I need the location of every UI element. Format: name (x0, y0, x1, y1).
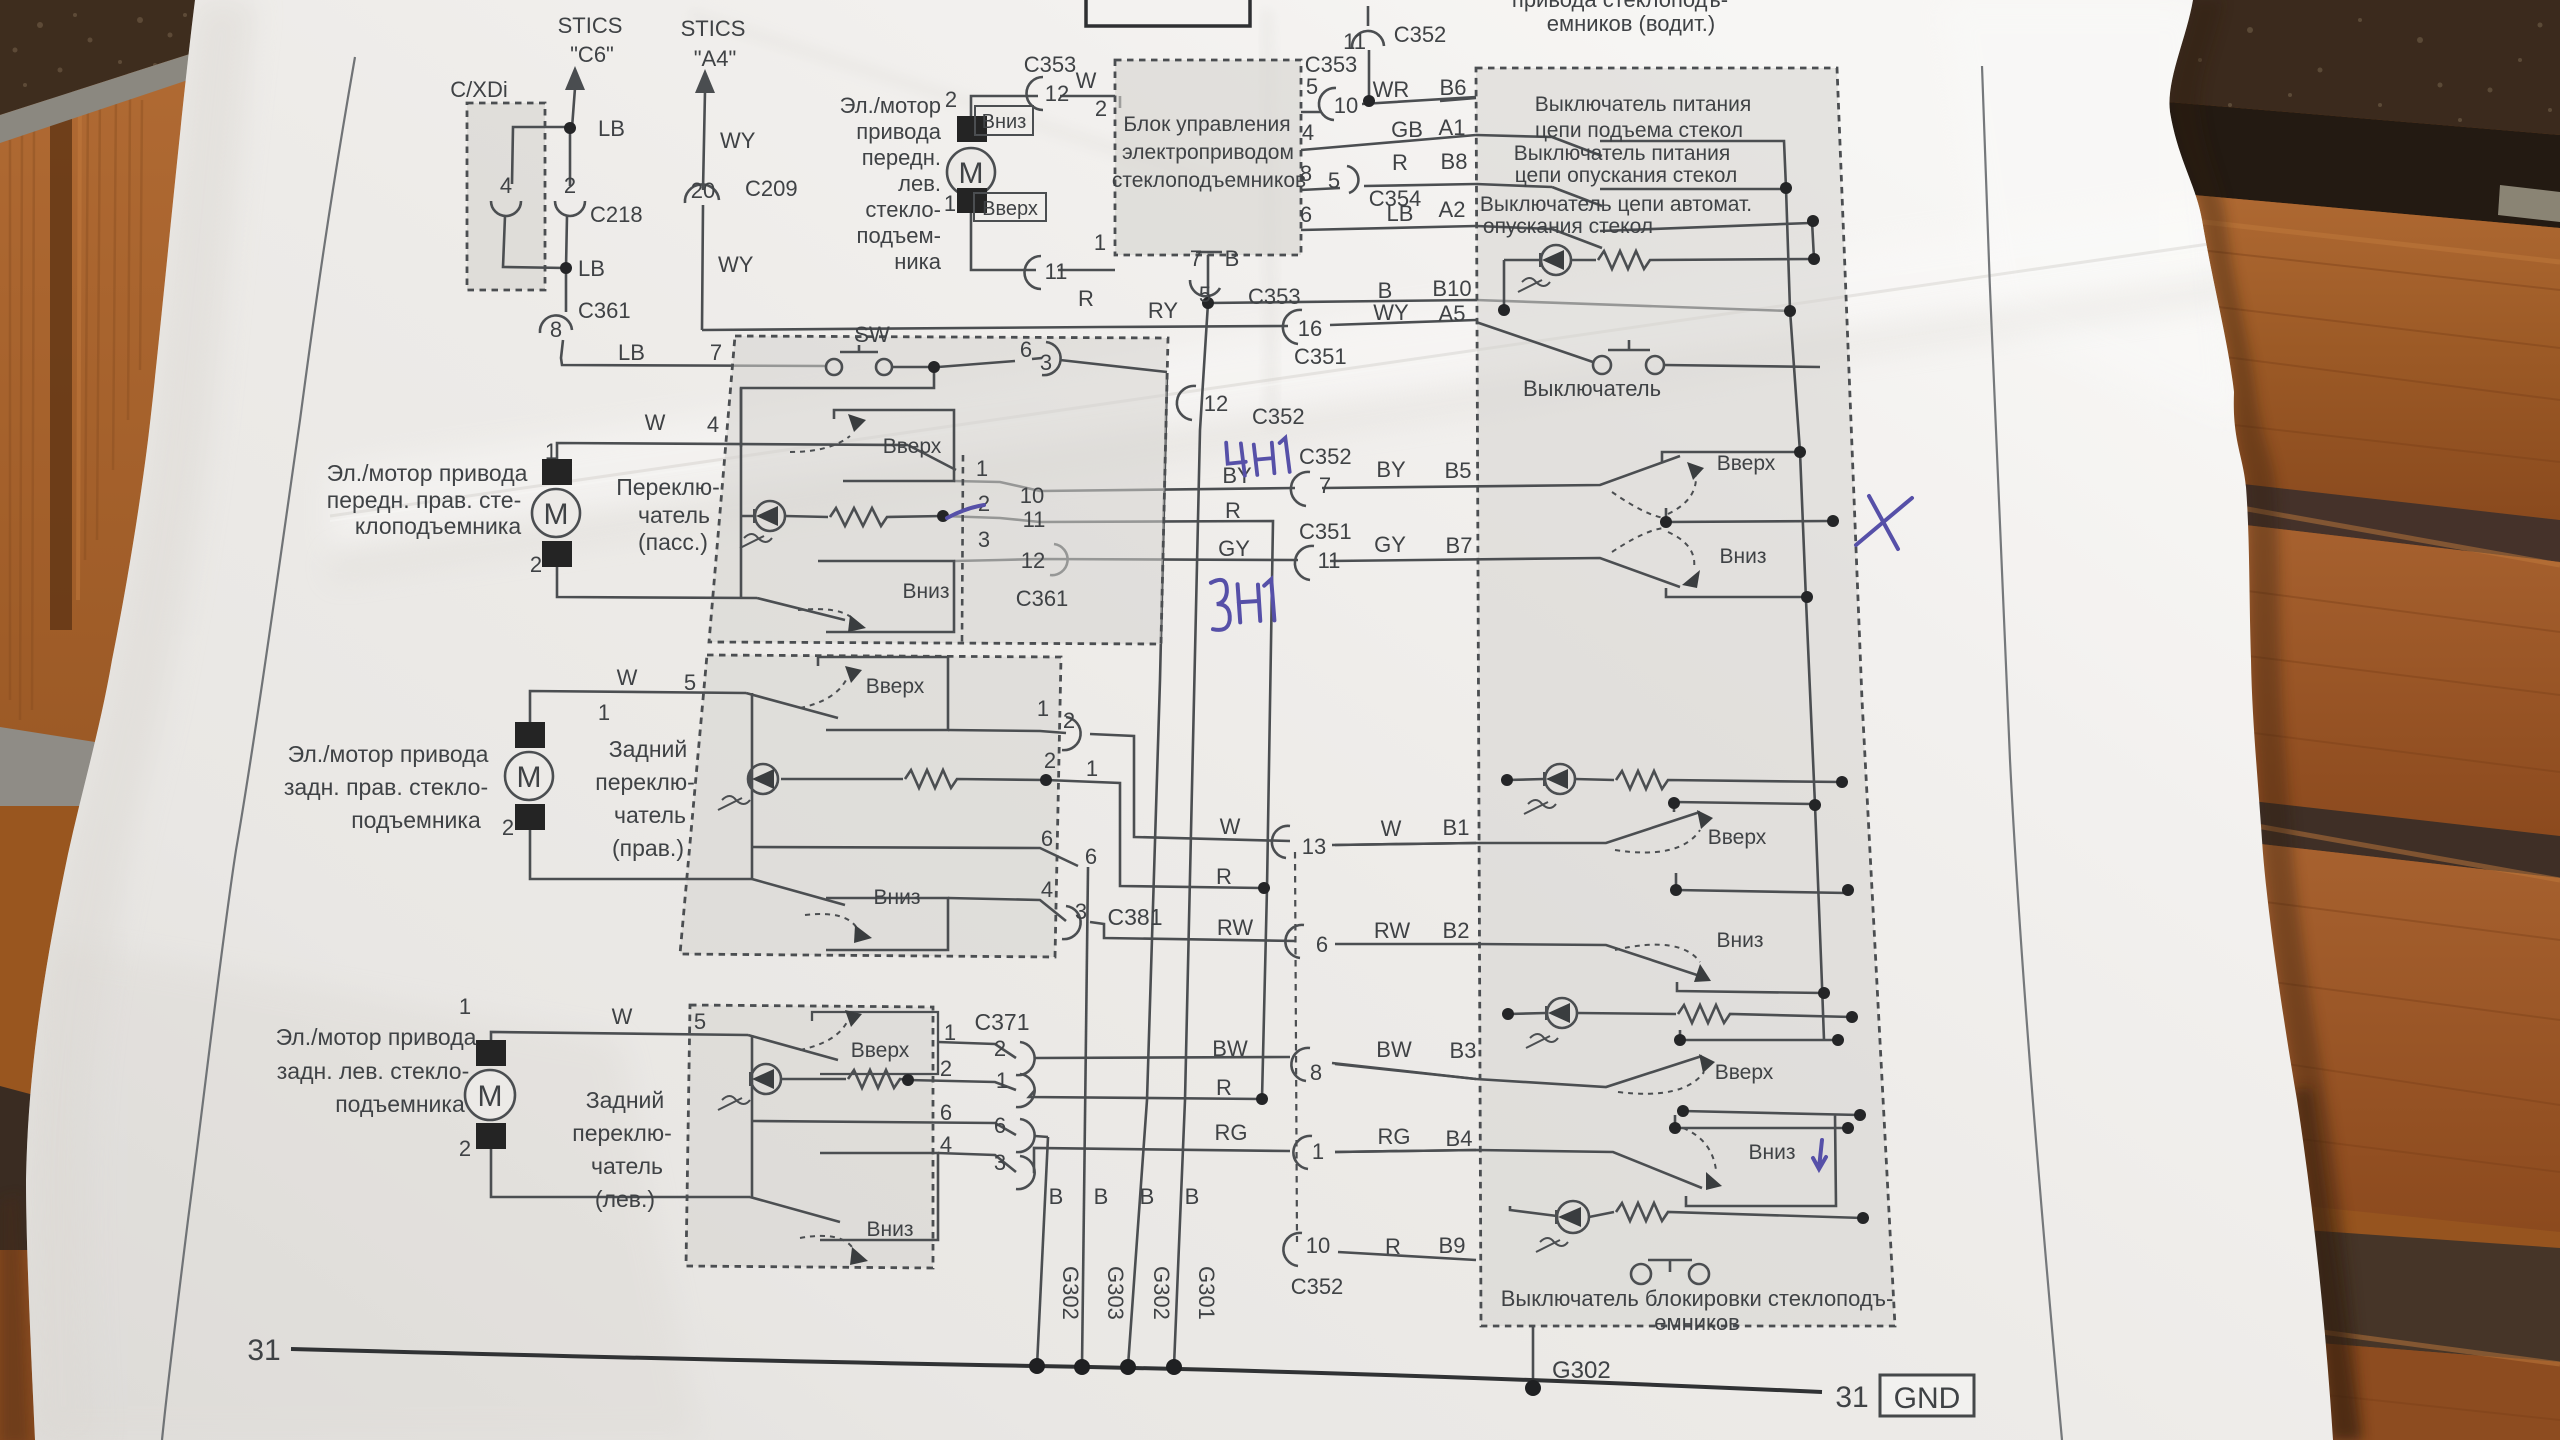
svg-text:2: 2 (530, 552, 542, 577)
svg-text:1: 1 (1312, 1139, 1324, 1164)
svg-text:4: 4 (500, 173, 512, 198)
svg-text:W: W (645, 410, 666, 435)
svg-text:W: W (612, 1004, 633, 1029)
svg-text:C353: C353 (1024, 52, 1077, 77)
svg-text:1: 1 (944, 1020, 956, 1045)
svg-text:WY: WY (720, 128, 756, 153)
svg-text:B9: B9 (1439, 1233, 1466, 1258)
svg-text:C352: C352 (1394, 22, 1447, 47)
svg-text:Эл./мотор привода: Эл./мотор привода (327, 460, 528, 486)
svg-text:емников (водит.): емников (водит.) (1547, 11, 1715, 36)
svg-text:3: 3 (1040, 350, 1052, 375)
svg-text:B: B (1049, 1184, 1064, 1209)
svg-text:Вверх: Вверх (1708, 826, 1767, 849)
svg-text:привода: привода (856, 119, 941, 144)
svg-text:10: 10 (1306, 1233, 1330, 1258)
svg-text:R: R (1216, 1075, 1232, 1100)
svg-text:1: 1 (545, 439, 557, 464)
svg-text:BW: BW (1212, 1036, 1248, 1061)
svg-text:B1: B1 (1443, 815, 1470, 840)
svg-text:подъем-: подъем- (857, 223, 941, 248)
svg-text:клоподъемника: клоподъемника (355, 513, 522, 539)
svg-text:C361: C361 (578, 298, 631, 323)
svg-text:Вверх: Вверх (1717, 452, 1776, 475)
svg-text:лев.: лев. (898, 171, 941, 196)
svg-text:Вниз: Вниз (867, 1218, 914, 1241)
svg-text:W: W (1076, 68, 1097, 93)
svg-text:Эл./мотор привода: Эл./мотор привода (288, 741, 489, 767)
svg-text:1: 1 (459, 994, 471, 1019)
svg-text:6: 6 (1020, 337, 1032, 362)
svg-text:3: 3 (994, 1150, 1006, 1175)
svg-text:5: 5 (1306, 74, 1318, 99)
svg-text:C209: C209 (745, 176, 798, 201)
svg-text:13: 13 (1302, 834, 1326, 859)
svg-text:Выключатель блокировки стеклоп: Выключатель блокировки стеклоподъ- (1501, 1286, 1894, 1311)
svg-text:M: M (478, 1080, 503, 1113)
svg-text:RW: RW (1217, 915, 1253, 940)
svg-text:GY: GY (1374, 532, 1406, 557)
svg-text:C218: C218 (590, 202, 643, 227)
svg-text:опускания стекол: опускания стекол (1483, 215, 1653, 238)
svg-text:A5: A5 (1439, 301, 1466, 326)
svg-text:A2: A2 (1439, 197, 1466, 222)
svg-text:Вверх: Вверх (1715, 1061, 1774, 1084)
svg-text:W: W (617, 665, 638, 690)
svg-text:C361: C361 (1016, 586, 1069, 611)
svg-text:G301: G301 (1194, 1266, 1219, 1320)
svg-text:8: 8 (550, 317, 562, 342)
svg-text:7: 7 (1190, 246, 1202, 271)
svg-text:2: 2 (1044, 748, 1056, 773)
svg-text:M: M (959, 157, 984, 190)
svg-text:6: 6 (994, 1113, 1006, 1138)
svg-text:2: 2 (502, 815, 514, 840)
svg-text:"C6": "C6" (570, 42, 614, 67)
svg-text:C351: C351 (1299, 519, 1352, 544)
svg-text:BY: BY (1222, 463, 1252, 488)
svg-text:10: 10 (1334, 93, 1358, 118)
svg-text:G302: G302 (1058, 1266, 1083, 1320)
svg-text:(прав.): (прав.) (612, 835, 684, 861)
svg-text:B6: B6 (1440, 75, 1467, 100)
svg-text:GND: GND (1894, 1382, 1961, 1415)
svg-text:11: 11 (1343, 29, 1366, 54)
svg-text:электроприводом: электроприводом (1122, 141, 1294, 164)
svg-text:1: 1 (996, 1068, 1008, 1093)
svg-text:LB: LB (578, 256, 605, 281)
svg-text:31: 31 (247, 1334, 280, 1367)
svg-text:R: R (1385, 1234, 1401, 1259)
svg-text:12: 12 (1021, 548, 1045, 573)
svg-text:B3: B3 (1450, 1038, 1477, 1063)
svg-text:1: 1 (1086, 756, 1098, 781)
svg-text:12: 12 (1045, 81, 1069, 106)
svg-text:B: B (1378, 278, 1393, 303)
svg-text:G303: G303 (1103, 1266, 1128, 1320)
svg-text:5: 5 (694, 1009, 706, 1034)
svg-text:STICS: STICS (558, 13, 623, 38)
svg-text:B2: B2 (1443, 918, 1470, 943)
svg-text:RG: RG (1215, 1120, 1248, 1145)
svg-text:LB: LB (598, 116, 625, 141)
svg-text:стеклоподъемников: стеклоподъемников (1112, 169, 1306, 192)
svg-text:B7: B7 (1446, 533, 1473, 558)
svg-text:B5: B5 (1445, 458, 1472, 483)
svg-text:B10: B10 (1432, 276, 1471, 301)
svg-text:11: 11 (1045, 259, 1068, 284)
svg-text:стекло-: стекло- (865, 197, 941, 222)
svg-text:5: 5 (684, 670, 696, 695)
svg-text:B: B (1185, 1184, 1200, 1209)
svg-text:Вниз: Вниз (982, 111, 1027, 133)
svg-text:C353: C353 (1248, 284, 1301, 309)
svg-text:2: 2 (1063, 708, 1075, 733)
svg-text:цепи подъема стекол: цепи подъема стекол (1535, 119, 1743, 142)
svg-text:цепи опускания стекол: цепи опускания стекол (1515, 164, 1738, 187)
svg-text:Переклю-: Переклю- (616, 474, 720, 500)
svg-text:подъемника: подъемника (335, 1091, 465, 1117)
svg-text:переклю-: переклю- (572, 1120, 671, 1146)
svg-text:C371: C371 (975, 1009, 1030, 1035)
svg-text:4: 4 (1041, 877, 1053, 902)
svg-text:1: 1 (976, 456, 988, 481)
svg-text:Вниз: Вниз (874, 886, 921, 909)
svg-text:Выключатель питания: Выключатель питания (1535, 93, 1751, 116)
svg-text:16: 16 (1298, 316, 1322, 341)
svg-text:3: 3 (978, 527, 990, 552)
svg-text:GB: GB (1391, 117, 1423, 142)
svg-text:3: 3 (1075, 899, 1087, 924)
svg-text:2: 2 (564, 173, 576, 198)
svg-text:10: 10 (1020, 483, 1044, 508)
svg-text:Выключатель цепи автомат.: Выключатель цепи автомат. (1480, 193, 1752, 216)
svg-text:чатель: чатель (591, 1153, 663, 1179)
svg-text:LB: LB (618, 340, 645, 365)
svg-text:R: R (1392, 150, 1408, 175)
svg-text:11: 11 (1023, 507, 1046, 532)
svg-text:LB: LB (1387, 201, 1414, 226)
svg-text:чатель: чатель (614, 802, 686, 828)
svg-text:B8: B8 (1441, 149, 1468, 174)
svg-text:Задний: Задний (586, 1087, 665, 1113)
svg-text:BW: BW (1376, 1037, 1412, 1062)
svg-text:W: W (1381, 816, 1402, 841)
svg-text:6: 6 (1041, 826, 1053, 851)
svg-text:R: R (1078, 286, 1094, 311)
svg-text:WR: WR (1373, 77, 1410, 102)
svg-text:(лев.): (лев.) (595, 1186, 655, 1212)
svg-text:G302: G302 (1552, 1357, 1611, 1384)
svg-text:2: 2 (994, 1036, 1006, 1061)
svg-text:"A4": "A4" (694, 46, 737, 71)
svg-text:передн. прав. сте-: передн. прав. сте- (327, 487, 522, 513)
svg-text:переклю-: переклю- (595, 769, 694, 795)
svg-text:A1: A1 (1439, 115, 1466, 140)
svg-text:чатель: чатель (638, 502, 710, 528)
svg-text:20: 20 (691, 178, 715, 203)
svg-text:WY: WY (1373, 300, 1409, 325)
svg-text:4: 4 (1302, 120, 1314, 145)
svg-text:7: 7 (1319, 473, 1331, 498)
svg-text:6: 6 (940, 1100, 952, 1125)
svg-text:8: 8 (1310, 1060, 1322, 1085)
svg-text:GY: GY (1218, 536, 1250, 561)
svg-text:Вверх: Вверх (866, 675, 925, 698)
svg-text:RY: RY (1148, 298, 1178, 323)
svg-text:B: B (1094, 1184, 1109, 1209)
svg-text:Задний: Задний (609, 736, 688, 762)
svg-text:B: B (1225, 246, 1240, 271)
svg-text:Выключатель питания: Выключатель питания (1514, 142, 1730, 165)
svg-text:12: 12 (1204, 391, 1228, 416)
svg-text:C381: C381 (1108, 904, 1163, 930)
svg-text:Эл./мотор: Эл./мотор (840, 93, 941, 118)
svg-text:5: 5 (1199, 282, 1211, 307)
svg-text:R: R (1216, 864, 1232, 889)
svg-text:C/XDi: C/XDi (450, 77, 507, 102)
svg-text:C351: C351 (1294, 344, 1347, 369)
svg-text:Вниз: Вниз (1720, 545, 1767, 568)
svg-text:задн. лев. стекло-: задн. лев. стекло- (277, 1058, 469, 1084)
svg-text:1: 1 (1094, 230, 1106, 255)
svg-text:Выключатель: Выключатель (1523, 376, 1661, 401)
svg-text:емников: емников (1654, 1310, 1740, 1335)
svg-text:6: 6 (1316, 932, 1328, 957)
svg-text:2: 2 (1095, 96, 1107, 121)
svg-text:задн. прав. стекло-: задн. прав. стекло- (284, 774, 488, 800)
svg-text:передн.: передн. (862, 145, 941, 170)
svg-text:SW: SW (854, 322, 890, 347)
svg-text:B4: B4 (1446, 1126, 1473, 1151)
svg-text:Вниз: Вниз (1749, 1141, 1796, 1164)
svg-text:2: 2 (940, 1056, 952, 1081)
svg-text:ника: ника (894, 249, 942, 274)
svg-text:B: B (1140, 1184, 1155, 1209)
svg-text:Вверх: Вверх (982, 198, 1038, 220)
svg-text:1: 1 (1037, 696, 1049, 721)
svg-text:2: 2 (459, 1136, 471, 1161)
svg-text:8: 8 (1300, 161, 1312, 186)
svg-text:W: W (1220, 814, 1241, 839)
svg-text:5: 5 (1328, 168, 1340, 193)
svg-text:M: M (544, 498, 569, 531)
svg-text:подъемника: подъемника (351, 807, 481, 833)
svg-text:BY: BY (1376, 457, 1406, 482)
svg-text:WY: WY (718, 252, 754, 277)
svg-text:R: R (1225, 498, 1241, 523)
svg-text:RG: RG (1378, 1124, 1411, 1149)
svg-text:Вниз: Вниз (903, 580, 950, 603)
svg-text:Эл./мотор привода: Эл./мотор привода (276, 1024, 477, 1050)
svg-text:4: 4 (940, 1132, 952, 1157)
svg-text:11: 11 (1318, 548, 1341, 573)
svg-text:7: 7 (710, 340, 722, 365)
svg-text:31: 31 (1835, 1381, 1868, 1414)
svg-text:4: 4 (707, 412, 719, 437)
svg-text:(пасс.): (пасс.) (638, 529, 708, 555)
svg-text:6: 6 (1085, 844, 1097, 869)
svg-text:RW: RW (1374, 918, 1410, 943)
svg-text:Вверх: Вверх (851, 1039, 910, 1062)
svg-text:6: 6 (1300, 202, 1312, 227)
svg-text:1: 1 (598, 700, 610, 725)
svg-text:G302: G302 (1149, 1266, 1174, 1320)
svg-text:Вверх: Вверх (883, 435, 942, 458)
svg-text:Вниз: Вниз (1717, 929, 1764, 952)
svg-text:C352: C352 (1252, 404, 1305, 429)
svg-text:M: M (517, 761, 542, 794)
svg-text:2: 2 (945, 87, 957, 112)
svg-text:STICS: STICS (681, 16, 746, 41)
svg-text:C352: C352 (1291, 1274, 1344, 1299)
svg-text:1: 1 (944, 191, 956, 216)
svg-text:C352: C352 (1299, 444, 1352, 469)
svg-text:Блок управления: Блок управления (1123, 113, 1290, 136)
